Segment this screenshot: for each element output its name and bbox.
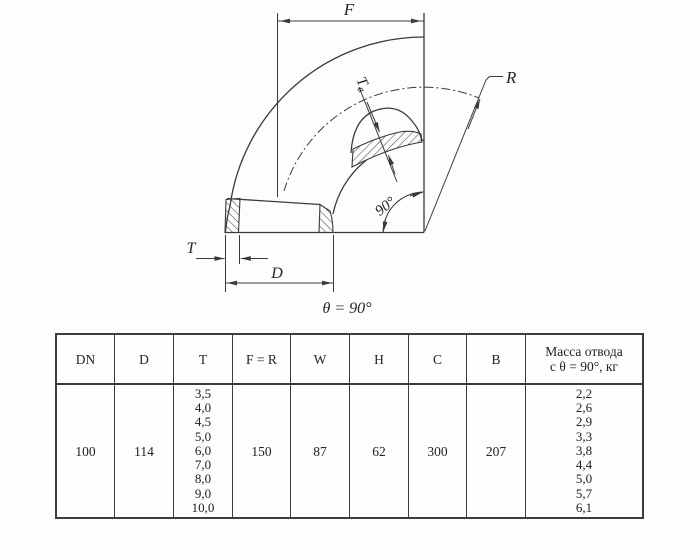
r-leader (425, 77, 503, 232)
elbow-technical-drawing: F R Tв 90° T (0, 0, 700, 332)
stub-right-wall-section (319, 205, 333, 233)
d-dimension-label: D (270, 265, 283, 282)
elbow-body (225, 13, 479, 233)
f-dimension-label: F (343, 0, 355, 19)
header-cell-h: H (350, 335, 409, 385)
value-cell-c: 300 (409, 385, 467, 517)
header-cell-f-r: F = R (233, 335, 291, 385)
t-dimension-label: T (187, 240, 197, 257)
angle-label: 90° (372, 194, 398, 219)
value-cell-w: 87 (291, 385, 350, 517)
stub-left-wall-section (225, 199, 240, 233)
value-cell-h: 62 (350, 385, 409, 517)
header-cell-mass: Масса отвода с θ = 90°, кг (526, 335, 642, 385)
header-cell-dn: DN (57, 335, 115, 385)
value-cell-t: 3,5 4,0 4,5 5,0 6,0 7,0 8,0 9,0 10,0 (174, 385, 233, 517)
header-cell-w: W (291, 335, 350, 385)
value-cell-b: 207 (467, 385, 526, 517)
value-cell-dn: 100 (57, 385, 115, 517)
pipe-elbow-spec-page: F R Tв 90° T (0, 0, 700, 560)
r-leader-label: R (505, 68, 517, 87)
d-dimension (226, 235, 334, 292)
stub-top-edge (227, 199, 320, 205)
header-cell-b: B (467, 335, 526, 385)
header-cell-c: C (409, 335, 467, 385)
value-cell-f-r: 150 (233, 385, 291, 517)
elbow-spec-table: DN D T F = R W H C B Масса отвода с θ = … (55, 333, 644, 519)
header-cell-d: D (115, 335, 174, 385)
wall-thickness-label: Tв (351, 75, 373, 95)
header-cell-t: T (174, 335, 233, 385)
value-cell-d: 114 (115, 385, 174, 517)
diagram-caption: θ = 90° (322, 300, 372, 317)
value-cell-mass: 2,2 2,6 2,9 3,3 3,8 4,4 5,0 5,7 6,1 (526, 385, 642, 517)
